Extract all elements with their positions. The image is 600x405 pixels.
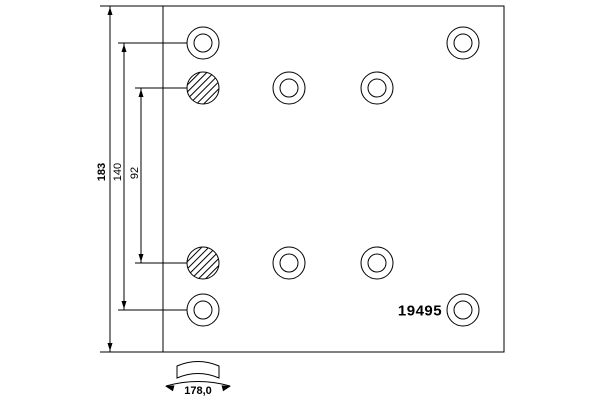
dimension-label-total-height: 183: [96, 163, 108, 181]
rivet-hole-outer: [361, 72, 393, 104]
rivet-hole-outer: [187, 27, 219, 59]
rivet-hole-outer: [447, 27, 479, 59]
rivet-hole-outer: [273, 72, 305, 104]
dimension-label-outer-hole-spacing: 140: [112, 163, 124, 181]
arrow-up-icon: [139, 89, 144, 97]
dimension-label-inner-hole-spacing: 92: [129, 167, 141, 179]
rivet-hole-outer: [361, 247, 393, 279]
arrow-up-icon: [108, 7, 113, 15]
arrow-down-icon: [139, 254, 144, 262]
lining-arc-profile: [177, 362, 219, 379]
arrow-up-icon: [122, 44, 127, 52]
rivet-hole-outer: [447, 294, 479, 326]
brake-lining-technical-drawing: 183 140 92 19495 178,0: [0, 0, 600, 400]
rivet-hole-outer: [187, 294, 219, 326]
hatched-hole: [187, 247, 219, 279]
arrow-down-icon: [108, 343, 113, 351]
arc-width-dimension-label: 178,0: [184, 385, 212, 397]
rivet-hole-outer: [273, 247, 305, 279]
arrow-down-icon: [122, 301, 127, 309]
drawing-canvas: 183 140 92 19495 178,0: [0, 0, 600, 400]
hatched-hole: [187, 72, 219, 104]
part-number-label: 19495: [398, 303, 442, 320]
